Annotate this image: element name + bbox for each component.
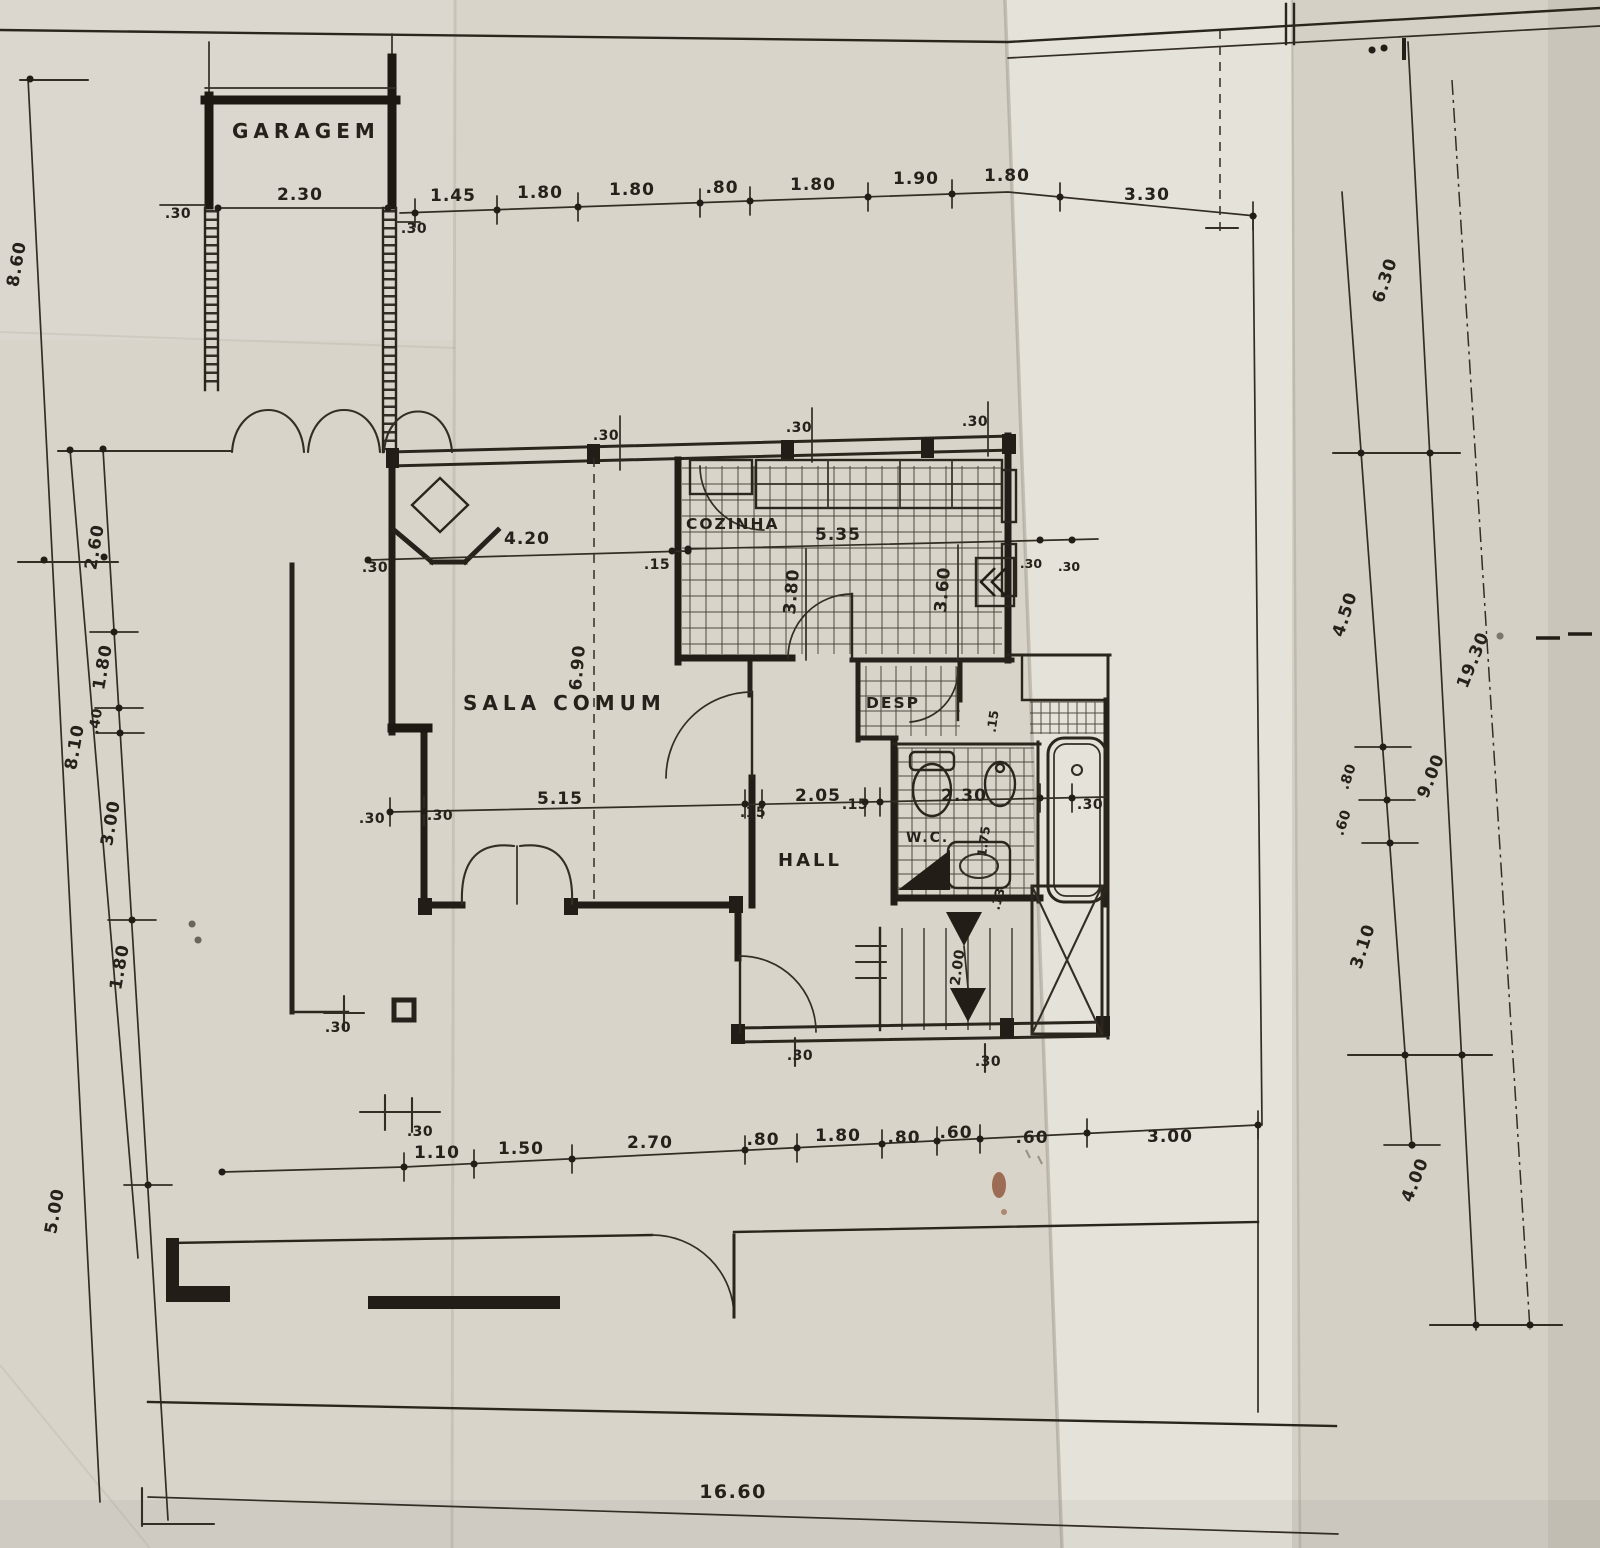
dim-kitchen-width: 5.35: [815, 525, 861, 545]
dim-desp-wall: .15: [984, 709, 1002, 733]
dim-bottom-4: 1.80: [815, 1126, 861, 1146]
dim-kitchen-depth-left: 3.80: [780, 568, 804, 616]
terrace-wall-bar-2: [368, 1296, 560, 1309]
dim-kitchen-wall-a: .30: [1020, 556, 1042, 571]
dim-sala-width: 4.20: [504, 529, 550, 549]
dim-mid-left-wall: .30: [359, 811, 385, 827]
dim-mid-left-wall2: .30: [427, 808, 453, 824]
rust-stain: [992, 1172, 1006, 1198]
room-label-hall: HALL: [778, 850, 842, 871]
dim-entry-tick: .30: [407, 1124, 433, 1140]
dim-top-3: .80: [705, 178, 738, 198]
dim-mid-wall-a: .15: [740, 805, 766, 821]
dim-bottom-8: 3.00: [1147, 1127, 1193, 1147]
paper: [0, 0, 1600, 1548]
room-label-pantry: DESP: [866, 694, 920, 712]
dim-top-7: 3.30: [1124, 185, 1170, 205]
dim-mid-sala-span: 5.15: [537, 789, 583, 809]
dim-garage-width: 2.30: [277, 185, 323, 205]
dim-top-6: 1.80: [984, 166, 1030, 186]
dim-mid-hall-span: 2.05: [795, 786, 841, 806]
dim-sala-left-wall: .30: [362, 560, 388, 576]
dim-porch-tick: .30: [325, 1020, 351, 1036]
dim-sala-right-wall: .15: [644, 557, 670, 573]
dim-bottom-5: .80: [887, 1128, 920, 1148]
dim-hall-wall-a: .30: [787, 1048, 813, 1064]
dim-bottom-7: .60: [1015, 1128, 1048, 1148]
dim-top-0: 1.45: [430, 186, 476, 206]
room-label-kitchen: COZINHA: [686, 515, 780, 533]
dim-bottom-1: 1.50: [498, 1139, 544, 1159]
niche-hatch: [1030, 702, 1106, 734]
dim-top-4: 1.80: [790, 175, 836, 195]
dim-kitchen-depth-right: 3.60: [931, 566, 955, 614]
dim-site-width: 16.60: [699, 1481, 767, 1503]
room-label-living: SALA COMUM: [463, 691, 666, 715]
dim-mid-tub-wall: .30: [1077, 797, 1103, 813]
dim-sala-depth: 6.90: [566, 644, 590, 692]
dim-bottom-6: .60: [939, 1123, 972, 1143]
dim-hall-wall-b: .30: [975, 1054, 1001, 1070]
floor-plan-svg: GARAGEM SALA COMUM COZINHA DESP HALL W.C…: [0, 0, 1600, 1548]
dim-bottom-3: .80: [746, 1130, 779, 1150]
dim-wall-tick-2: .30: [962, 414, 988, 430]
dim-top-2: 1.80: [609, 180, 655, 200]
room-label-wc: W.C.: [906, 830, 949, 846]
floor-plan-photo: GARAGEM SALA COMUM COZINHA DESP HALL W.C…: [0, 0, 1600, 1548]
dim-bottom-2: 2.70: [627, 1133, 673, 1153]
dim-mid-wall-b: .15: [842, 797, 868, 813]
dim-garage-left-wall: .30: [165, 206, 191, 222]
dim-mid-wc-span: 2.30: [941, 786, 987, 806]
dim-top-5: 1.90: [893, 169, 939, 189]
dim-top-1: 1.80: [517, 183, 563, 203]
dim-wall-tick-0: .30: [593, 428, 619, 444]
dim-kitchen-wall-b: .30: [1058, 559, 1080, 574]
dim-bottom-0: 1.10: [414, 1143, 460, 1163]
dim-wall-tick-1: .30: [786, 420, 812, 436]
room-label-garage: GARAGEM: [232, 119, 380, 143]
dim-garage-right-wall: .30: [401, 221, 427, 237]
